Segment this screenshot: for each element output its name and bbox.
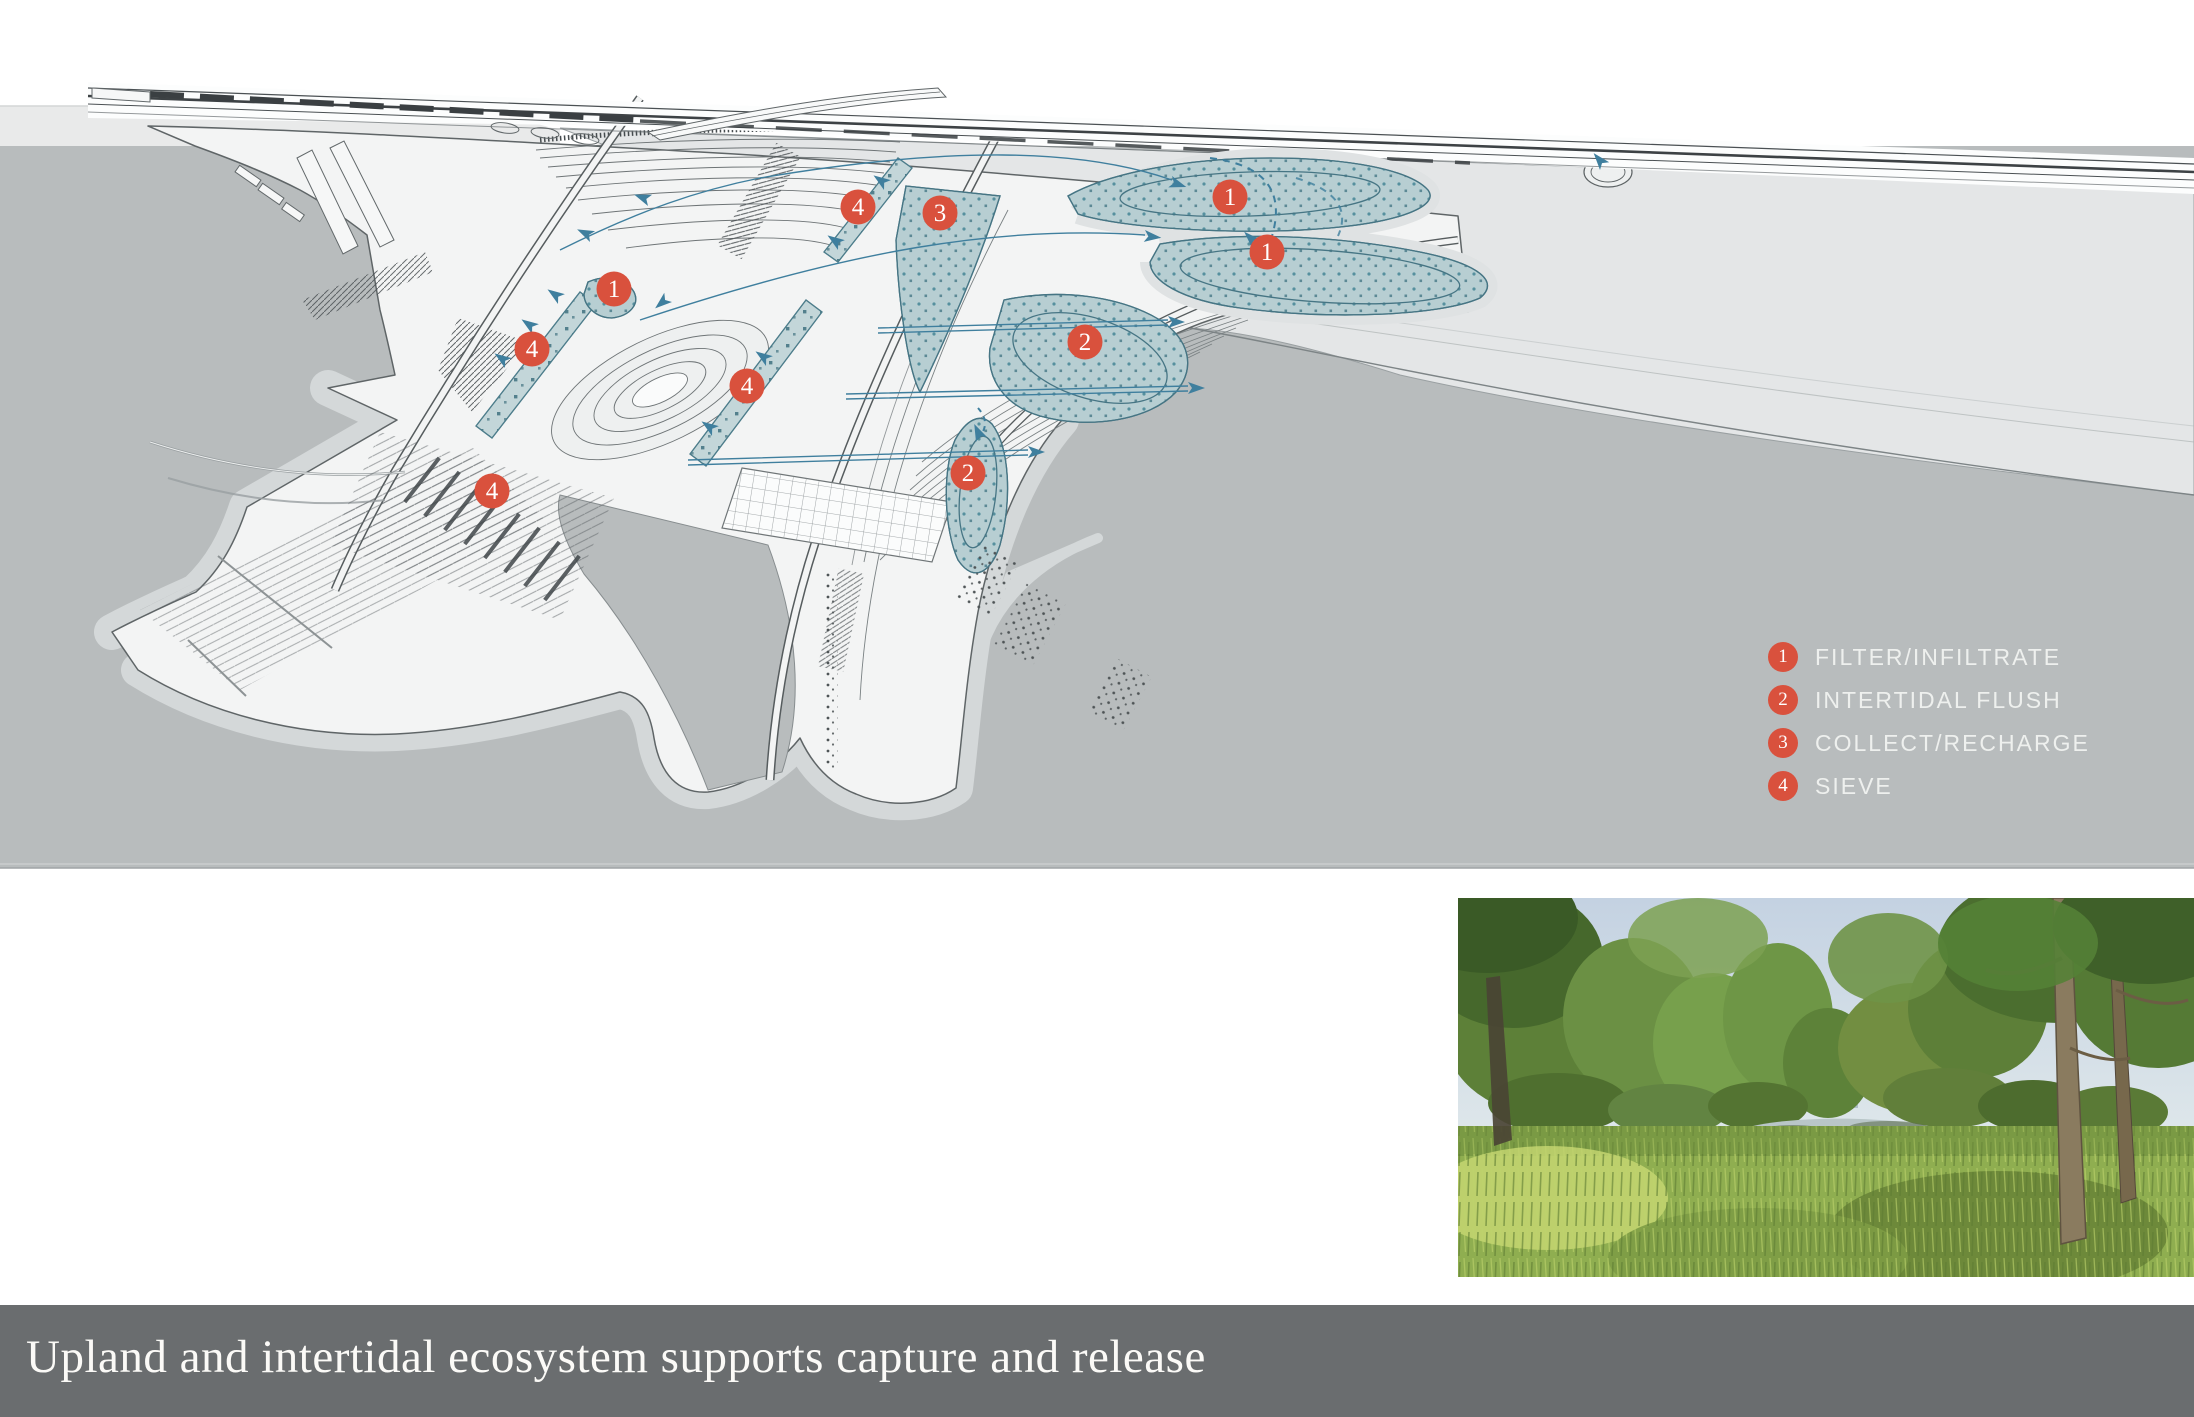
map-marker-3: 3 — [923, 196, 958, 231]
wetland-photo — [1458, 898, 2194, 1277]
svg-text:1: 1 — [1261, 239, 1274, 266]
legend-label: COLLECT/RECHARGE — [1815, 730, 2090, 757]
svg-text:4: 4 — [486, 478, 499, 505]
legend-label: FILTER/INFILTRATE — [1815, 644, 2061, 671]
svg-text:1: 1 — [1224, 184, 1237, 211]
svg-text:3: 3 — [934, 200, 947, 227]
svg-text:4: 4 — [526, 336, 539, 363]
legend-item: 2INTERTIDAL FLUSH — [1768, 685, 2194, 715]
svg-text:4: 4 — [741, 373, 754, 400]
map-marker-2: 2 — [951, 456, 986, 491]
svg-text:4: 4 — [852, 194, 865, 221]
wetland-photo-art — [1458, 898, 2194, 1277]
legend: 1FILTER/INFILTRATE2INTERTIDAL FLUSH3COLL… — [1768, 642, 2194, 814]
slide: 4311214424 1FILTER/INFILTRATE2INTERTIDAL… — [0, 0, 2194, 1417]
caption-text: Upland and intertidal ecosystem supports… — [0, 1305, 2194, 1384]
legend-label: SIEVE — [1815, 773, 1893, 800]
map-marker-4: 4 — [730, 369, 765, 404]
legend-label: INTERTIDAL FLUSH — [1815, 687, 2062, 714]
map-marker-4: 4 — [475, 474, 510, 509]
map-marker-4: 4 — [841, 190, 876, 225]
map-marker-1: 1 — [1213, 180, 1248, 215]
caption-bar: Upland and intertidal ecosystem supports… — [0, 1305, 2194, 1417]
legend-item: 3COLLECT/RECHARGE — [1768, 728, 2194, 758]
legend-number-badge: 1 — [1768, 642, 1798, 672]
legend-item: 4SIEVE — [1768, 771, 2194, 801]
svg-text:2: 2 — [962, 460, 975, 487]
map-marker-4: 4 — [515, 332, 550, 367]
svg-text:1: 1 — [608, 276, 621, 303]
legend-number-badge: 4 — [1768, 771, 1798, 801]
legend-item: 1FILTER/INFILTRATE — [1768, 642, 2194, 672]
map-marker-2: 2 — [1068, 325, 1103, 360]
legend-number-badge: 2 — [1768, 685, 1798, 715]
map-marker-1: 1 — [1250, 235, 1285, 270]
map-marker-1: 1 — [597, 272, 632, 307]
svg-text:2: 2 — [1079, 329, 1092, 356]
legend-number-badge: 3 — [1768, 728, 1798, 758]
